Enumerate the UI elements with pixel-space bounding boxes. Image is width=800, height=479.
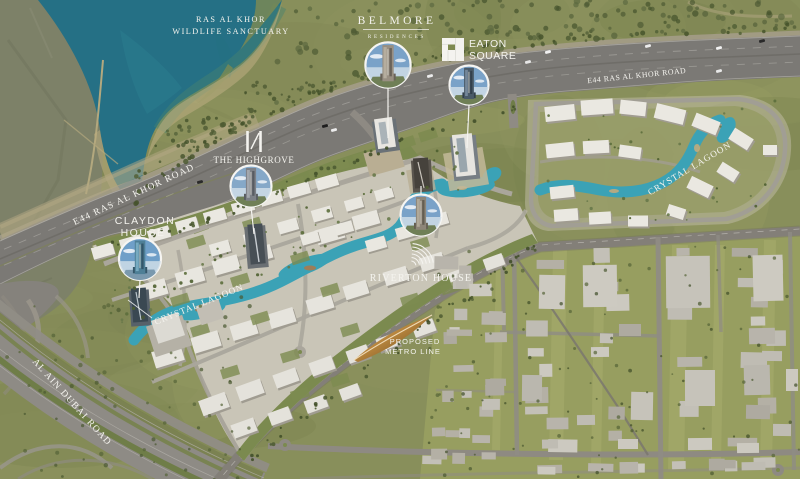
svg-text:SQUARE: SQUARE	[469, 50, 516, 62]
svg-text:CLAYDON: CLAYDON	[115, 215, 175, 227]
svg-text:WILDLIFE SANCTUARY: WILDLIFE SANCTUARY	[172, 27, 289, 36]
svg-text:BELMORE: BELMORE	[358, 15, 437, 27]
svg-text:RIVERTON HOUSE: RIVERTON HOUSE	[370, 273, 472, 284]
svg-text:THE HIGHGROVE: THE HIGHGROVE	[213, 155, 294, 165]
svg-text:METRO LINE: METRO LINE	[385, 347, 441, 356]
svg-text:EATON: EATON	[469, 38, 507, 50]
svg-text:PROPOSED: PROPOSED	[390, 337, 441, 346]
svg-text:RAS AL KHOR: RAS AL KHOR	[196, 15, 266, 24]
svg-text:RESIDENCES: RESIDENCES	[368, 35, 426, 40]
